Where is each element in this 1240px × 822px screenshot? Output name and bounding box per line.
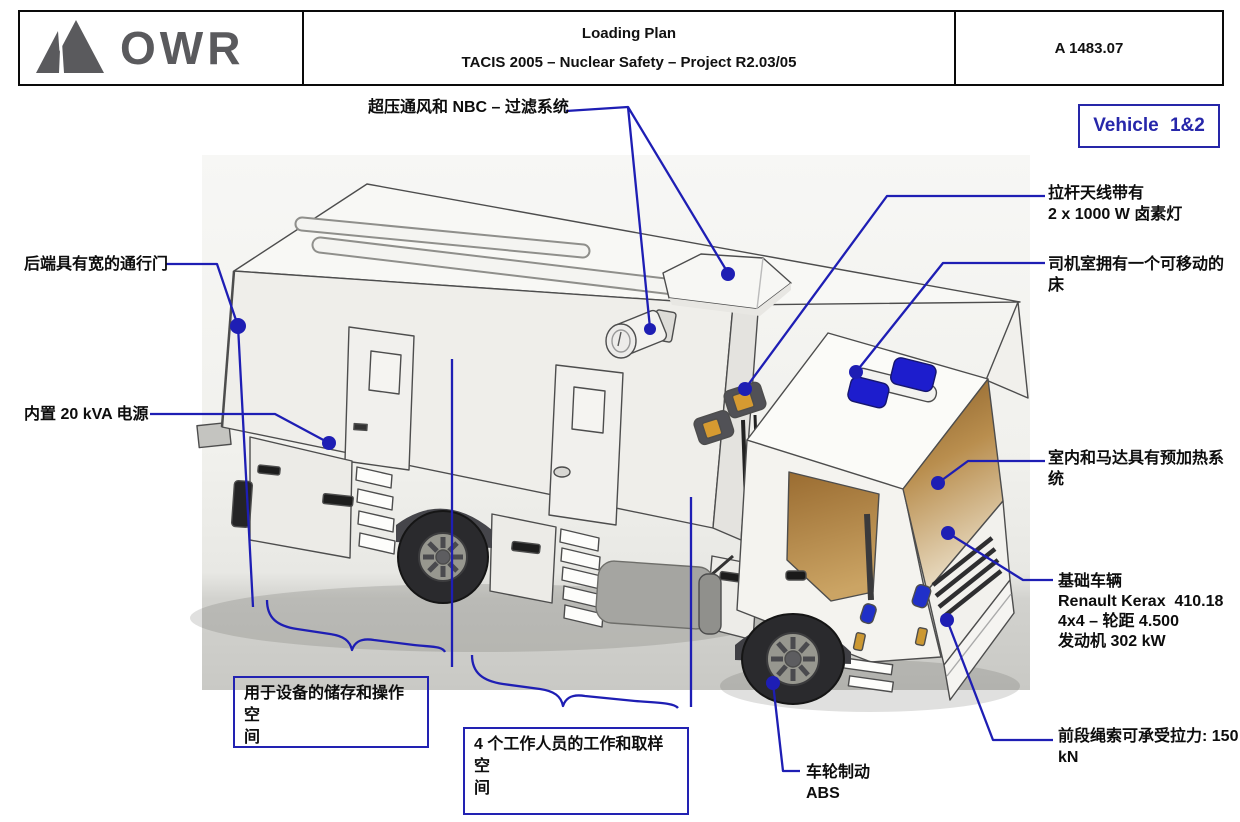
callout-base-vehicle: 基础车辆 Renault Kerax 410.18 4x4 – 轮距 4.500…: [1058, 572, 1223, 652]
callout-front-rope: 前段绳索可承受拉力: 150 kN: [1058, 726, 1238, 768]
work-space-brace: [472, 655, 678, 708]
callout-power-supply: 内置 20 kVA 电源: [24, 404, 148, 425]
equipment-tank: [595, 560, 715, 630]
document-page: OWR Loading Plan TACIS 2005 – Nuclear Sa…: [0, 0, 1240, 822]
callout-antenna-lamps: 拉杆天线带有 2 x 1000 W 卤素灯: [1048, 183, 1182, 225]
callout-work-space: 4 个工作人员的工作和取样空 间: [463, 727, 689, 815]
callout-nbc-filter: 超压通风和 NBC – 过滤系统: [368, 97, 569, 118]
truck-illustration: [0, 0, 1240, 822]
callout-cab-bed: 司机室拥有一个可移动的 床: [1048, 254, 1224, 296]
side-mirror: [699, 574, 721, 634]
callout-storage-space: 用于设备的储存和操作空 间: [233, 676, 429, 748]
callout-preheating: 室内和马达具有预加热系 统: [1048, 448, 1224, 490]
callout-rear-door: 后端具有宽的通行门: [24, 254, 168, 275]
callout-wheel-brake: 车轮制动 ABS: [806, 762, 870, 804]
